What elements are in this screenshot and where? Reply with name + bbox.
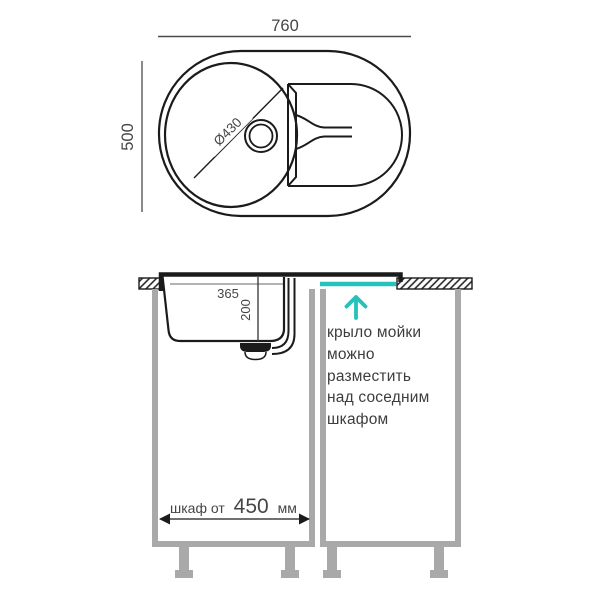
cabinet-dim-value: 450 [234,495,269,518]
up-arrow-icon [347,297,366,318]
top-view-drawing: 760 500 [119,17,411,216]
depth-dim-200-label: 200 [238,299,253,321]
note-line: разместить [327,366,457,388]
wing-dim-365-label: 365 [217,286,239,301]
dim-760-label: 760 [271,17,299,35]
cabinet-dim-unit: мм [278,500,297,516]
drain-fitting-icon [240,343,271,360]
cabinet-left-wall-left [152,289,158,541]
cabinet-left-bottom [152,541,315,547]
note-line: над соседним [327,387,457,409]
dim-500-label-group: 500 [119,123,137,151]
cabinet-left-wall-right [309,289,315,541]
countertop-hatch-left [139,278,161,289]
depth-dim-200-label-group: 200 [238,299,253,321]
drain-hole-icon [245,120,277,152]
note-text: крыло мойки можно разместить над соседни… [327,322,457,431]
note-line: можно [327,344,457,366]
sink-dimensions-diagram: 760 500 [0,0,600,600]
note-line: шкафом [327,409,457,431]
cabinet-right-wall-left [320,289,326,541]
diagram-canvas: 760 500 [0,0,600,600]
note-line: крыло мойки [327,322,457,344]
cabinet-legs [175,547,448,578]
cabinet-dim-prefix: шкаф от [170,500,225,516]
sink-outline [159,51,410,216]
cabinet-dim-label: шкаф от 450 мм [170,495,297,518]
countertop-hatch-right [397,278,472,289]
cabinet-right-bottom [320,541,461,547]
dim-500-label: 500 [119,123,137,151]
